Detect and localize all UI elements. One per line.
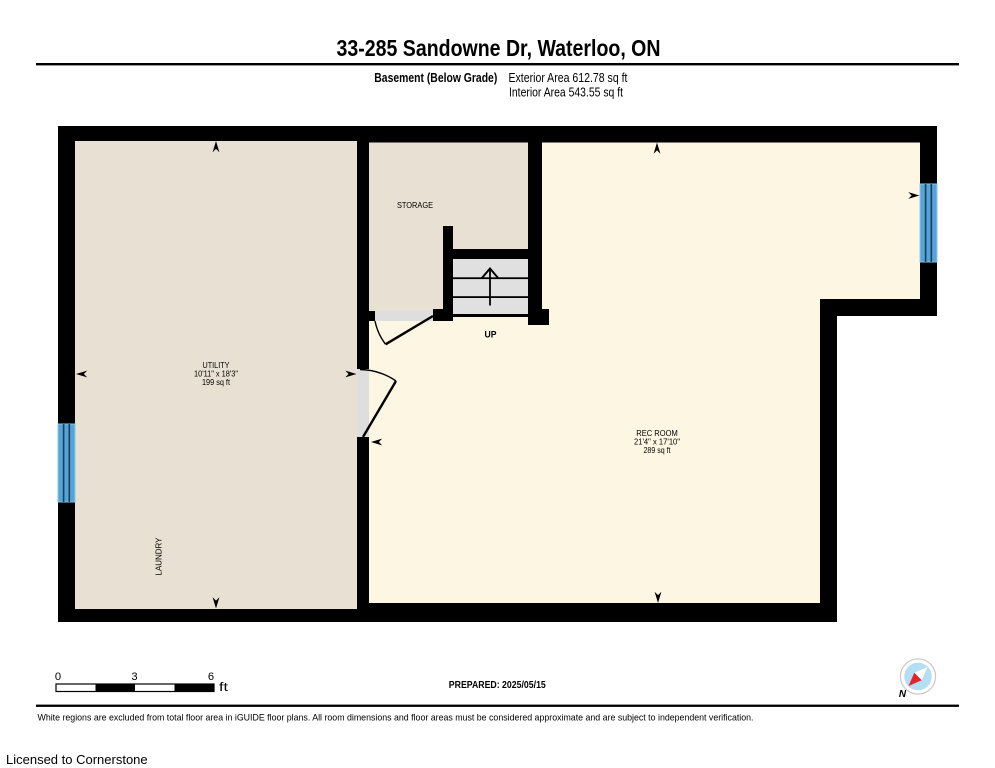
svg-text:STORAGE: STORAGE [397,201,433,210]
svg-text:Exterior Area 612.78 sq ft: Exterior Area 612.78 sq ft [509,71,628,85]
svg-text:UP: UP [485,330,497,340]
svg-text:6: 6 [208,671,214,683]
svg-text:Licensed to Cornerstone: Licensed to Cornerstone [6,752,148,767]
svg-text:199 sq ft: 199 sq ft [202,378,231,387]
svg-text:LAUNDRY: LAUNDRY [155,537,164,576]
svg-text:White regions are excluded fro: White regions are excluded from total fl… [38,713,754,723]
svg-text:N: N [899,689,907,700]
svg-text:Basement (Below Grade): Basement (Below Grade) [374,71,497,85]
svg-text:Interior Area 543.55 sq ft: Interior Area 543.55 sq ft [509,86,623,100]
svg-text:ft: ft [219,682,229,694]
svg-text:PREPARED: 2025/05/15: PREPARED: 2025/05/15 [449,680,546,691]
svg-text:0: 0 [55,671,61,683]
svg-text:289 sq ft: 289 sq ft [644,446,672,455]
svg-text:33-285 Sandowne Dr, Waterloo,: 33-285 Sandowne Dr, Waterloo, ON [337,35,661,61]
svg-text:3: 3 [131,671,137,683]
